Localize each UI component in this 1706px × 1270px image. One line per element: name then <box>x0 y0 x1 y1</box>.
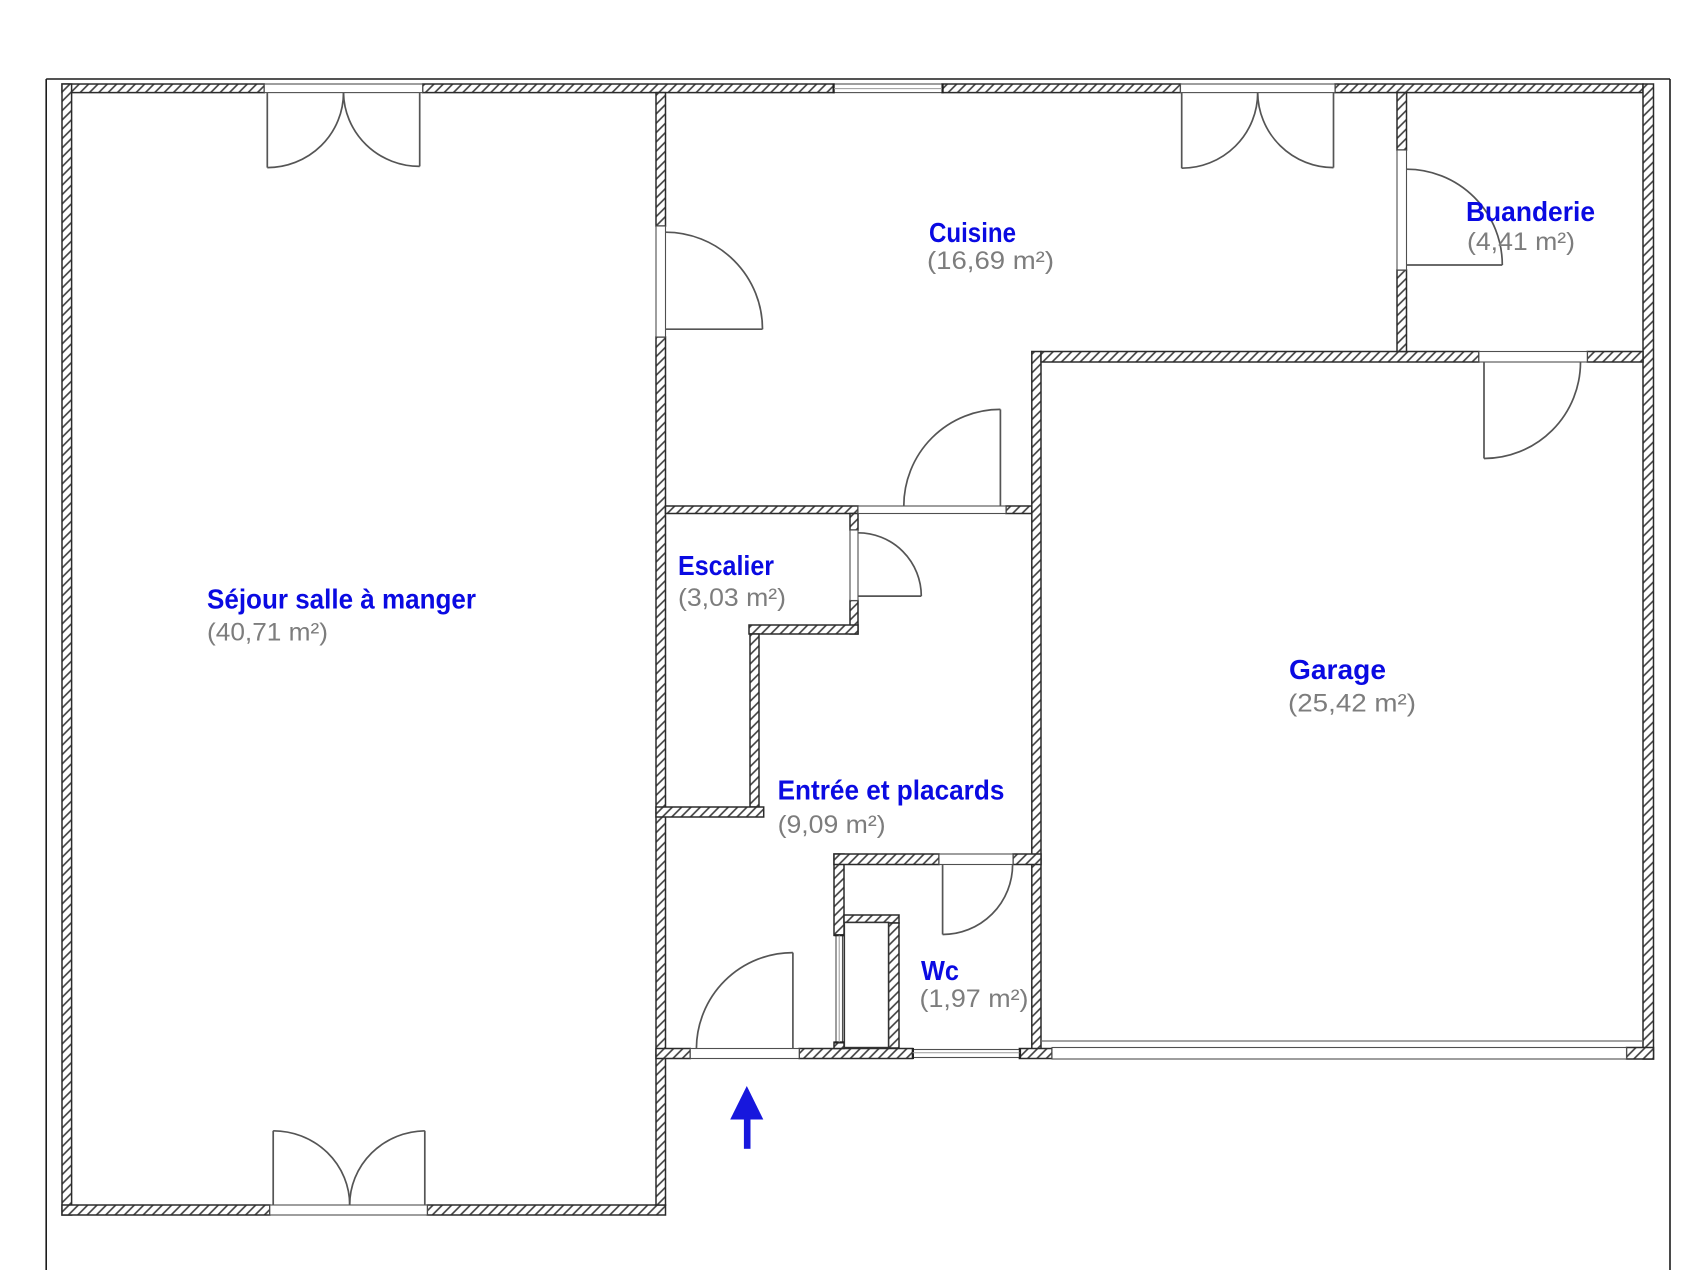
svg-text:Entrée et placards: Entrée et placards <box>778 775 1005 806</box>
svg-text:(9,09 m²): (9,09 m²) <box>778 811 886 839</box>
svg-text:(25,42 m²): (25,42 m²) <box>1288 690 1416 718</box>
svg-text:Garage: Garage <box>1289 654 1386 685</box>
svg-text:Wc: Wc <box>921 955 959 986</box>
svg-text:Escalier: Escalier <box>678 550 774 581</box>
svg-text:(4,41 m²): (4,41 m²) <box>1467 228 1575 256</box>
svg-text:(3,03 m²): (3,03 m²) <box>678 584 786 612</box>
svg-text:(1,97 m²): (1,97 m²) <box>920 985 1029 1013</box>
svg-text:Buanderie: Buanderie <box>1466 196 1595 227</box>
svg-text:Séjour salle à manger: Séjour salle à manger <box>207 583 476 614</box>
svg-text:(40,71 m²): (40,71 m²) <box>207 619 328 647</box>
svg-text:(16,69 m²): (16,69 m²) <box>927 247 1054 275</box>
svg-text:Cuisine: Cuisine <box>929 217 1016 248</box>
